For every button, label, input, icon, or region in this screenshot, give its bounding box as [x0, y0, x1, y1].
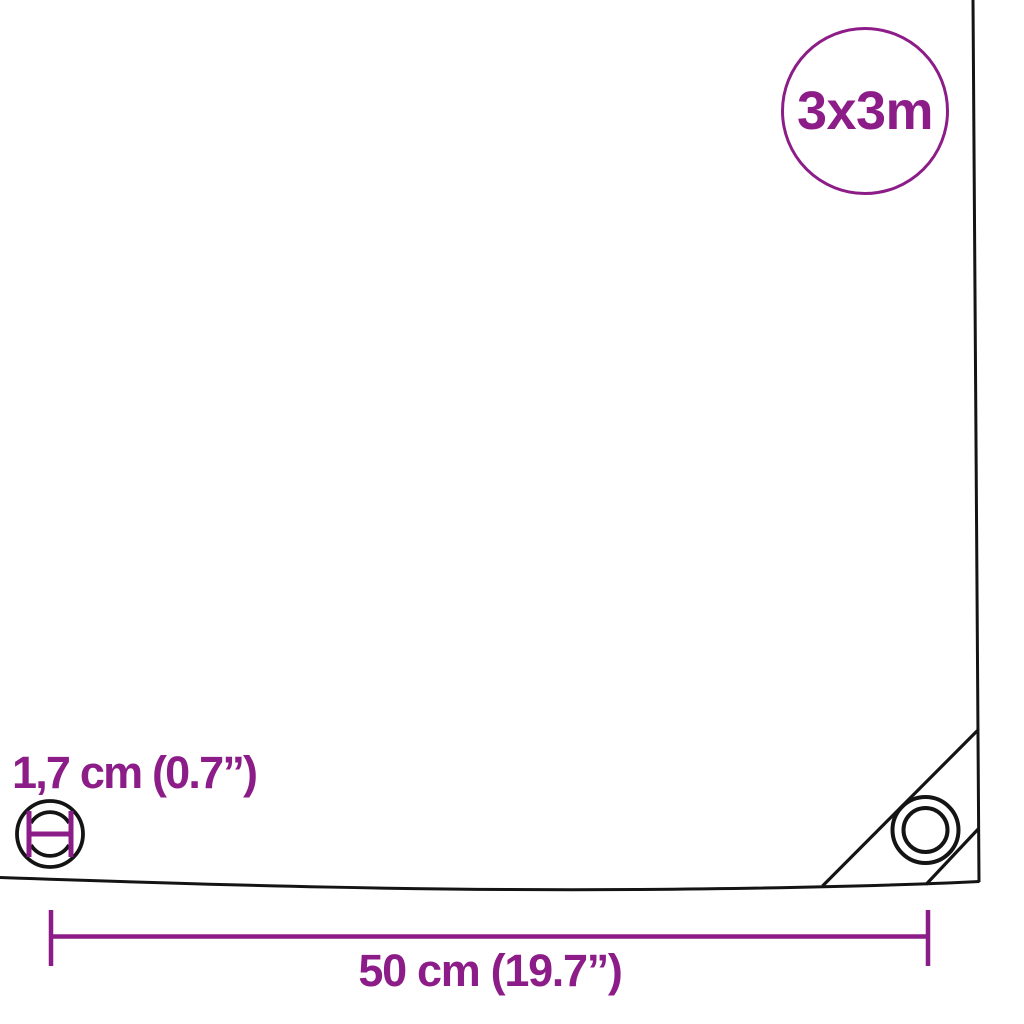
tarp-bottom-edge [0, 878, 980, 890]
corner-fold-seam-small [926, 829, 978, 885]
product-dimension-diagram: 3x3m 1,7 cm (0.7”) 50 cm (19.7”) [0, 0, 1024, 1024]
measured-eyelet-inner-ring-top-arc [31, 812, 69, 823]
corner-eyelet-inner-ring [904, 808, 948, 852]
tarp-right-edge [973, 0, 979, 882]
eyelet-diameter-label: 1,7 cm (0.7”) [12, 750, 256, 795]
size-badge-label: 3x3m [797, 84, 933, 138]
corner-eyelet-grommet-icon [893, 797, 959, 863]
corner-offset-label: 50 cm (19.7”) [358, 948, 621, 993]
size-badge-circle: 3x3m [781, 27, 949, 195]
measured-eyelet-inner-ring-bottom-arc [31, 845, 69, 856]
